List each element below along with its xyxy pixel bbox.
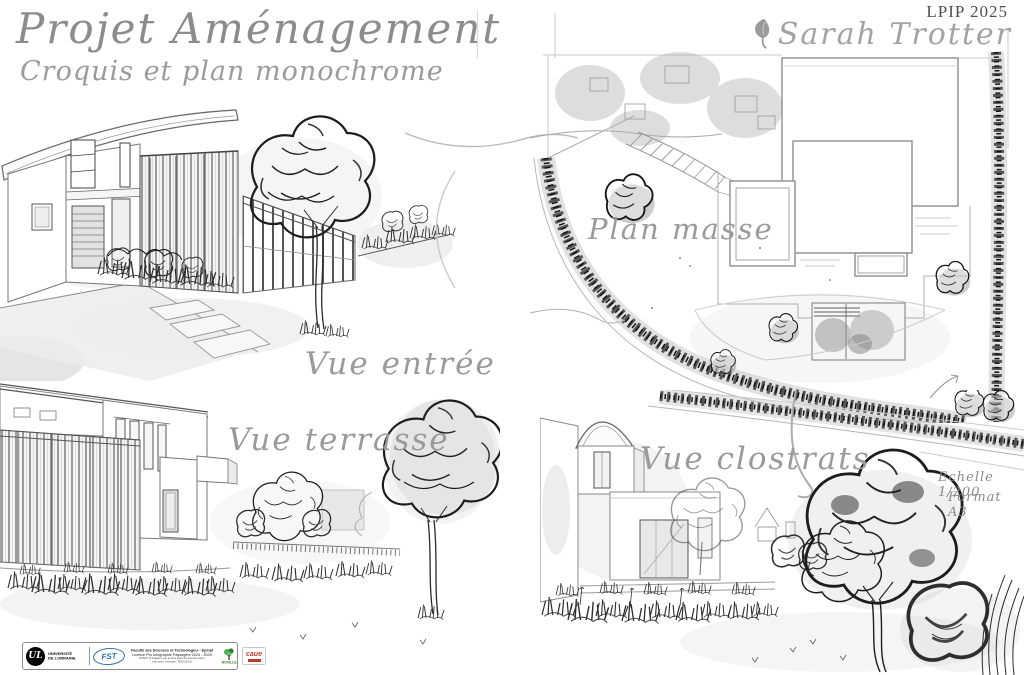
claustra-wall (0, 430, 140, 570)
page-title: Projet Aménagement (16, 4, 501, 53)
roville-label: ROVILLE (221, 661, 236, 665)
green-tree-icon (222, 647, 236, 661)
presentation-board: Projet Aménagement Croquis et plan monoc… (0, 0, 1024, 675)
footer-cartouche: UL UNIVERSITÉ DE LORRAINE FST Faculté de… (22, 642, 238, 670)
neighbor-washes (530, 52, 783, 146)
faculty-line4: d'un point, exemple : ROULE M.) (128, 661, 216, 664)
label-vue-clostrats: Vue clostrats (640, 441, 871, 477)
university-logo: UL (26, 647, 45, 666)
vue-entree-sketch (0, 96, 470, 381)
format-annotation: Format A3 (948, 490, 1024, 520)
label-vue-entree: Vue entrée (305, 346, 496, 382)
margin-line (477, 10, 478, 58)
label-plan-masse: Plan masse (588, 212, 774, 246)
roville-logo: ROVILLE (219, 647, 239, 666)
partner-logo-bar (248, 659, 261, 662)
fst-logo: FST (92, 646, 125, 665)
university-name-line2: DE LORRAINE (48, 656, 86, 661)
partner-logo: caue (242, 647, 266, 665)
label-vue-terrasse: Vue terrasse (228, 422, 450, 458)
page-subtitle: Croquis et plan monochrome (20, 56, 444, 87)
university-name: UNIVERSITÉ DE LORRAINE (48, 647, 86, 665)
vue-terrasse-sketch (0, 372, 500, 672)
footer-divider (89, 647, 90, 665)
faculty-text: Faculté des Sciences et Technologies - E… (128, 640, 216, 671)
partner-label: caue (246, 651, 262, 658)
vue-clostrats-sketch (540, 390, 1024, 675)
right-hedge (996, 52, 999, 422)
